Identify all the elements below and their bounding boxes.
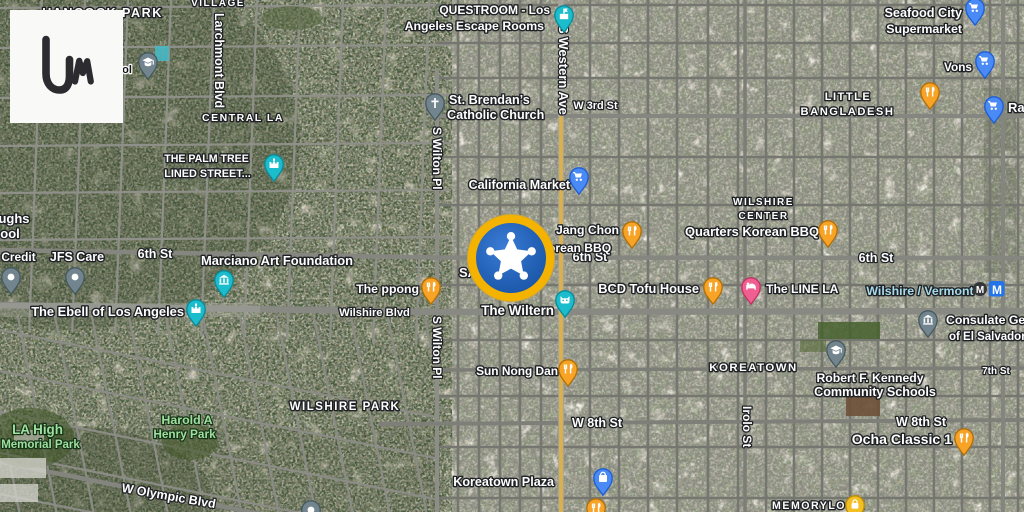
- svg-text:6th St: 6th St: [859, 251, 895, 265]
- svg-text:Irolo St: Irolo St: [740, 406, 754, 447]
- svg-text:ol: ol: [122, 64, 132, 76]
- svg-text:W 8th St: W 8th St: [896, 415, 947, 429]
- svg-text:S Western Ave: S Western Ave: [556, 25, 571, 115]
- svg-text:Harold A: Harold A: [161, 413, 212, 427]
- svg-text:KOREATOWN: KOREATOWN: [709, 362, 797, 374]
- svg-text:Supermarket: Supermarket: [886, 22, 962, 36]
- svg-text:Community Schools: Community Schools: [814, 385, 936, 399]
- svg-text:6th St: 6th St: [138, 247, 174, 261]
- svg-text:The LINE LA: The LINE LA: [766, 282, 839, 296]
- svg-text:Consulate Ge: Consulate Ge: [946, 313, 1024, 327]
- svg-text:Wilshire Blvd: Wilshire Blvd: [339, 307, 410, 319]
- svg-text:Wilshire / Vermont: Wilshire / Vermont: [866, 284, 973, 298]
- svg-text:S Wilton Pl: S Wilton Pl: [430, 127, 444, 190]
- svg-text:Catholic Church: Catholic Church: [447, 108, 544, 122]
- svg-text:St. Brendan’s: St. Brendan’s: [449, 93, 530, 107]
- svg-text:Jang Chon: Jang Chon: [556, 223, 619, 237]
- svg-text:Robert F. Kennedy: Robert F. Kennedy: [817, 371, 924, 385]
- svg-text:M: M: [976, 285, 984, 296]
- svg-text:LINED STREET...: LINED STREET...: [164, 168, 251, 180]
- svg-text:Quarters Korean BBQ: Quarters Korean BBQ: [685, 224, 819, 239]
- svg-text:The Ebell of Los Angeles: The Ebell of Los Angeles: [31, 304, 184, 319]
- svg-text:CENTER: CENTER: [738, 211, 788, 222]
- svg-text:Ral: Ral: [1008, 100, 1024, 115]
- svg-text:THE PALM TREE: THE PALM TREE: [164, 153, 249, 165]
- svg-text:of El Salvador: of El Salvador: [949, 331, 1024, 343]
- svg-text:Koreatown Plaza: Koreatown Plaza: [453, 475, 555, 489]
- svg-text:S Wilton Pl: S Wilton Pl: [430, 316, 444, 379]
- svg-text:Sun Nong Dan: Sun Nong Dan: [476, 364, 558, 378]
- svg-text:W 8th St: W 8th St: [572, 416, 623, 430]
- svg-text:ool: ool: [0, 226, 20, 241]
- svg-text:VILLAGE: VILLAGE: [191, 0, 245, 9]
- svg-text:Vons: Vons: [944, 60, 972, 74]
- svg-text:ughs: ughs: [0, 211, 30, 226]
- svg-text:Henry Park: Henry Park: [153, 427, 216, 441]
- svg-text:QUESTROOM - Los: QUESTROOM - Los: [439, 3, 550, 17]
- svg-text:Marciano Art Foundation: Marciano Art Foundation: [201, 253, 353, 268]
- svg-text:Seafood City: Seafood City: [884, 6, 962, 20]
- svg-text:7th St: 7th St: [982, 366, 1010, 377]
- svg-text:JFS Care: JFS Care: [50, 250, 104, 264]
- svg-text:Ocha Classic 1: Ocha Classic 1: [852, 431, 952, 447]
- svg-text:BCD Tofu House: BCD Tofu House: [598, 281, 699, 296]
- svg-text:Memorial Park: Memorial Park: [1, 439, 80, 451]
- svg-text:Angeles Escape Rooms: Angeles Escape Rooms: [405, 19, 545, 33]
- svg-text:orean BBQ: orean BBQ: [548, 241, 611, 255]
- svg-text:BANGLADESH: BANGLADESH: [801, 106, 895, 118]
- svg-text:W 3rd St: W 3rd St: [573, 100, 618, 112]
- svg-text:CENTRAL LA: CENTRAL LA: [202, 112, 284, 124]
- svg-text:The ppong: The ppong: [356, 282, 419, 296]
- svg-text:LITTLE: LITTLE: [825, 91, 872, 103]
- svg-text:The Wiltern: The Wiltern: [481, 303, 554, 318]
- svg-text:LA High: LA High: [12, 422, 63, 437]
- svg-text:M: M: [992, 283, 1002, 297]
- svg-text:Larchmont Blvd: Larchmont Blvd: [212, 13, 226, 108]
- svg-text:WILSHIRE: WILSHIRE: [733, 197, 794, 208]
- svg-text:WILSHIRE PARK: WILSHIRE PARK: [290, 401, 401, 413]
- svg-text:California Market: California Market: [469, 178, 571, 192]
- svg-text:Credit: Credit: [1, 250, 35, 264]
